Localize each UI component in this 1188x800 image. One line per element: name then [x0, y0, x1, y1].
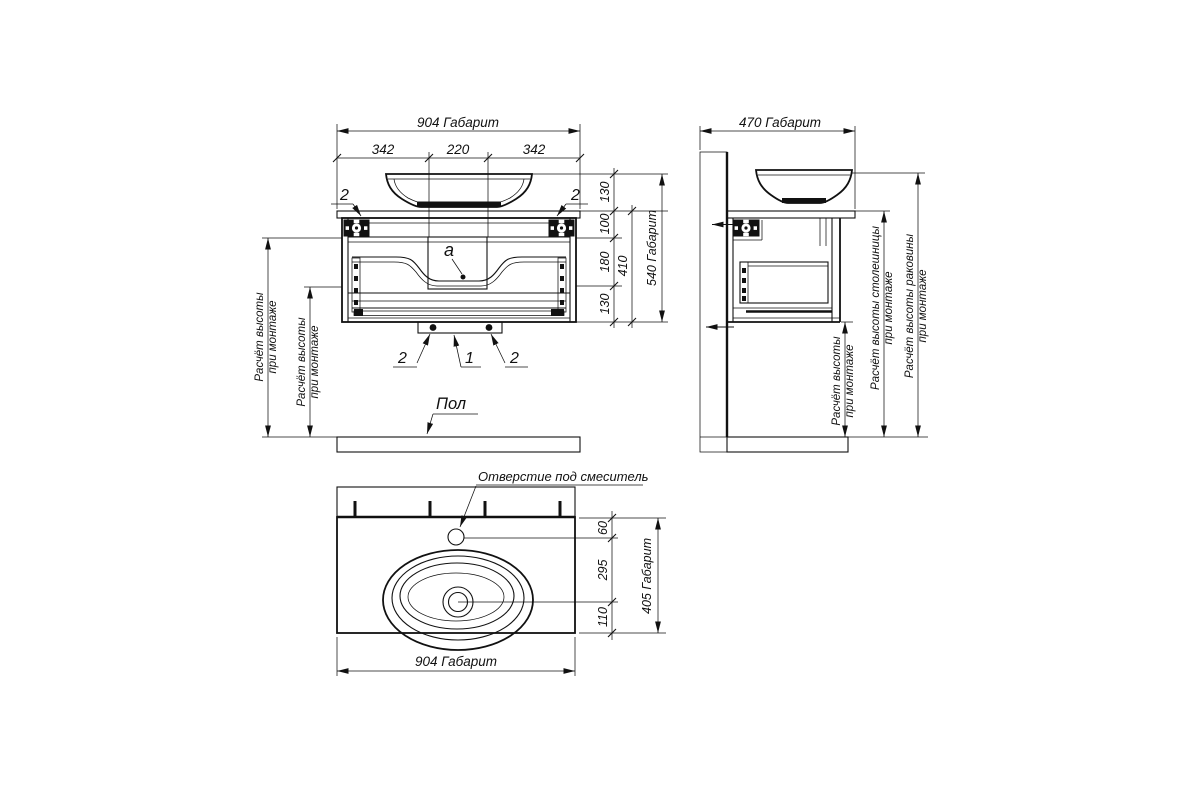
front-sink-bowl: [386, 174, 532, 207]
callout-1-bottom-center: 1: [465, 350, 474, 367]
side-floor: [727, 437, 848, 452]
side-wall: [700, 152, 727, 452]
callout-2-top-left: 2: [339, 187, 349, 204]
detail-a-label: a: [444, 240, 454, 260]
dim-405: 405 Габарит: [640, 538, 654, 614]
dim-342-left: 342: [372, 142, 395, 157]
floor-label: Пол: [436, 395, 466, 413]
front-drawer-curve: [352, 257, 566, 286]
technical-drawing-page: a Пол 904 Габарит 342 220 342: [0, 0, 1188, 800]
callout-2-top-right: 2: [570, 187, 580, 204]
front-bracket-right-icon: [549, 220, 574, 236]
detail-a-leader: [452, 259, 462, 274]
plan-bottom-dim: 904 Габарит: [337, 637, 575, 676]
front-right-dims: 130 100 180 130 410 540 Габарит: [532, 168, 668, 328]
height-dim-3-line1: Расчёт высоты раковины: [904, 233, 916, 378]
dim-110: 110: [596, 607, 610, 627]
front-slide-left: [352, 258, 360, 312]
side-sink-bowl: [756, 170, 852, 203]
plan-countertop: [337, 517, 575, 633]
right-slide-end: [551, 309, 564, 316]
front-countertop: [337, 211, 580, 218]
mount-height-1-line1: Расчёт высоты: [254, 292, 266, 382]
faucet-leader: [460, 486, 476, 527]
side-countertop: [727, 211, 855, 218]
dim-100: 100: [598, 214, 612, 235]
side-bracket-icon: [733, 220, 762, 240]
front-slide-right: [558, 258, 566, 312]
dim-60: 60: [596, 521, 610, 535]
dim-342-right: 342: [523, 142, 546, 157]
detail-a-dot: [461, 275, 466, 280]
front-siphon-box: [418, 322, 502, 333]
plan-faucet-hole: [448, 529, 464, 545]
dim-180: 180: [598, 252, 612, 273]
plan-view: Отверстие под смеситель 60 295 110 405 Г…: [337, 469, 666, 676]
height-dim-2-line1: Расчёт высоты столешницы: [870, 225, 882, 389]
side-top-dim: 470 Габарит: [700, 115, 855, 209]
floor-leader: [427, 414, 433, 434]
dim-295: 295: [596, 560, 610, 582]
dim-220: 220: [446, 142, 470, 157]
vanity-drawing-svg: a Пол 904 Габарит 342 220 342: [0, 0, 1188, 800]
height-dim-3-line2: при монтаже: [917, 269, 929, 342]
left-slide-end: [354, 309, 363, 316]
front-callouts: 2 2 2 1 2: [331, 187, 588, 367]
mount-height-2-line2: при монтаже: [309, 325, 321, 398]
height-dim-1-line2: при монтаже: [844, 344, 856, 417]
dim-904-plan: 904 Габарит: [415, 654, 497, 669]
height-dim-2-line2: при монтаже: [883, 271, 895, 344]
dim-470: 470 Габарит: [739, 115, 821, 130]
mount-height-1-line2: при монтаже: [267, 300, 279, 373]
callout-2-bottom-left: 2: [397, 350, 407, 367]
plan-sink: [383, 550, 533, 650]
mount-height-2-line1: Расчёт высоты: [296, 317, 308, 407]
plan-right-dims: 60 295 110 405 Габарит: [458, 511, 666, 640]
faucet-hole-label: Отверстие под смеситель: [478, 469, 649, 484]
plan-wall: [337, 487, 575, 517]
height-dim-1-line1: Расчёт высоты: [831, 336, 843, 426]
dim-410: 410: [616, 256, 630, 277]
front-bracket-left-icon: [344, 220, 369, 236]
front-left-dims: Расчёт высоты при монтаже Расчёт высоты …: [254, 238, 342, 437]
dim-130-bottom: 130: [598, 294, 612, 315]
callout-2-bottom-right: 2: [509, 350, 519, 367]
side-height-dims: Расчёт высоты при монтаже Расчёт высоты …: [831, 173, 929, 437]
dim-904-front: 904 Габарит: [417, 115, 499, 130]
dim-540: 540 Габарит: [645, 210, 659, 286]
front-view: a Пол 904 Габарит 342 220 342: [254, 115, 668, 452]
front-floor: [337, 437, 580, 452]
side-view: 470 Габарит Расчёт высоты при монтаже Ра…: [700, 115, 929, 452]
dim-130-top: 130: [598, 182, 612, 203]
plan-wall-brackets: [354, 501, 562, 517]
